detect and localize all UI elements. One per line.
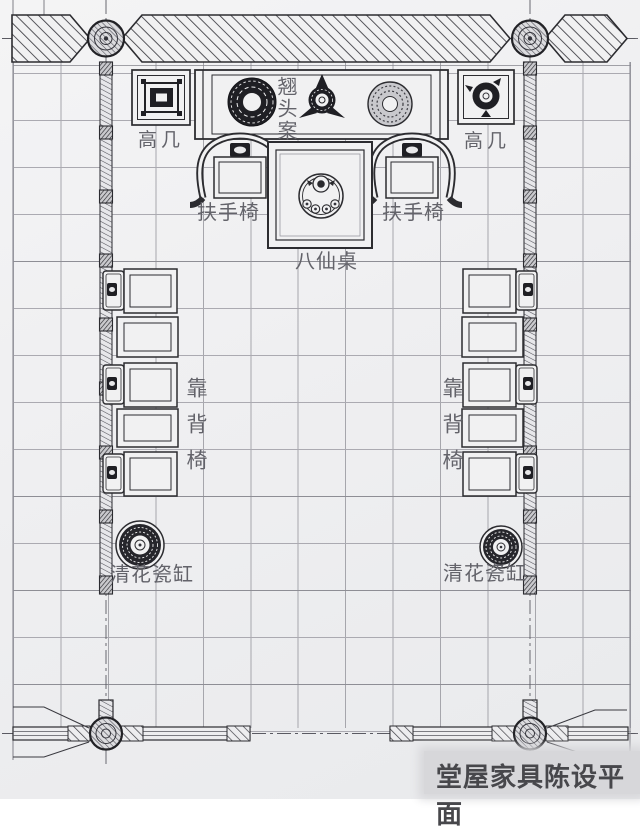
label-tall-stand-left: 高几	[138, 131, 184, 151]
tall-stand-left	[132, 70, 190, 125]
back-chair-right-2	[463, 363, 537, 407]
armchair-right	[362, 136, 462, 205]
porcelain-vat-left	[116, 521, 164, 569]
column-top-right	[512, 21, 548, 57]
back-chair-right-1	[463, 269, 537, 313]
label-altar-table: 翘头案	[274, 76, 295, 142]
eight-immortals-table	[268, 142, 372, 248]
tall-stand-right	[458, 70, 514, 124]
label-tall-stand-right: 高几	[464, 132, 510, 152]
bottom-wall	[13, 700, 628, 758]
drawing-title: 堂屋家具陈设平面	[436, 757, 640, 831]
carved-ring-ornament	[228, 78, 276, 126]
label-back-chairs-left: 靠背椅	[184, 377, 206, 485]
label-back-chairs-right: 靠背椅	[440, 377, 462, 485]
label-eight-immortals-table: 八仙桌	[295, 252, 358, 273]
back-chair-right-3	[463, 452, 537, 496]
tea-table-right-1	[462, 317, 523, 357]
tea-table-right-2	[462, 409, 523, 447]
partition-right	[524, 62, 537, 594]
plan-linework	[0, 0, 640, 799]
back-chair-left-1	[103, 269, 177, 313]
tea-table-left-1	[117, 317, 178, 357]
column-bottom-left	[90, 718, 122, 750]
label-porcelain-vat-left: 清花瓷缸	[110, 565, 194, 586]
column-top-left	[88, 21, 124, 57]
back-chair-left-2	[103, 363, 177, 407]
back-chair-left-3	[103, 452, 177, 496]
label-armchair-right: 扶手椅	[382, 203, 445, 224]
stippled-ring-ornament	[368, 82, 412, 126]
porcelain-vat-right	[480, 526, 522, 568]
column-bottom-right	[514, 718, 546, 750]
label-armchair-left: 扶手椅	[197, 203, 260, 224]
floor-plan: 高几 高几 翘头案 扶手椅 扶手椅 八仙桌 靠背椅 靠背椅 清花瓷缸 清花瓷缸 …	[0, 0, 640, 799]
label-porcelain-vat-right: 清花瓷缸	[443, 564, 527, 585]
tea-table-left-2	[117, 409, 178, 447]
partition-left	[100, 62, 113, 594]
